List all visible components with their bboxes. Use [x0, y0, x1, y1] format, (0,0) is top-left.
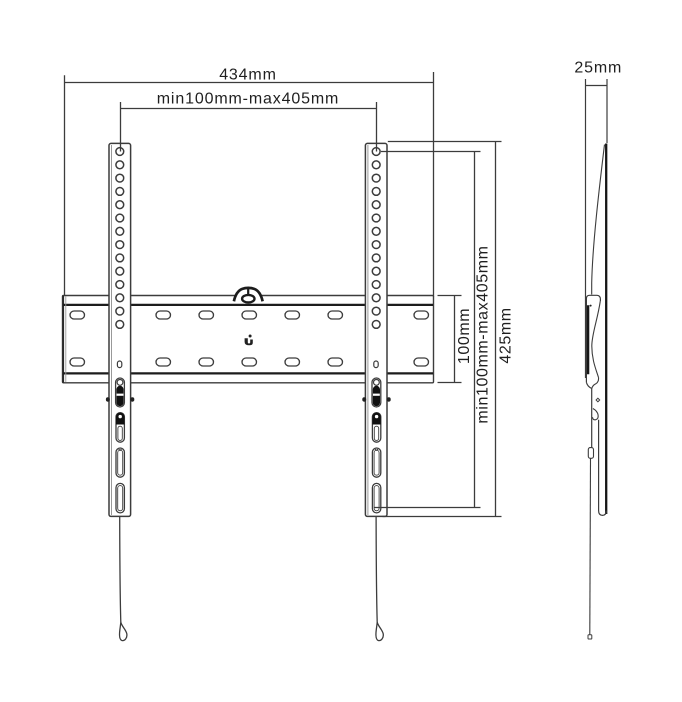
svg-text:425mm: 425mm — [498, 307, 515, 363]
svg-text:25mm: 25mm — [574, 59, 622, 76]
svg-text:100mm: 100mm — [456, 308, 473, 364]
svg-text:min100mm-max405mm: min100mm-max405mm — [475, 245, 492, 423]
svg-text:434mm: 434mm — [219, 66, 277, 83]
svg-text:min100mm-max405mm: min100mm-max405mm — [157, 91, 340, 108]
